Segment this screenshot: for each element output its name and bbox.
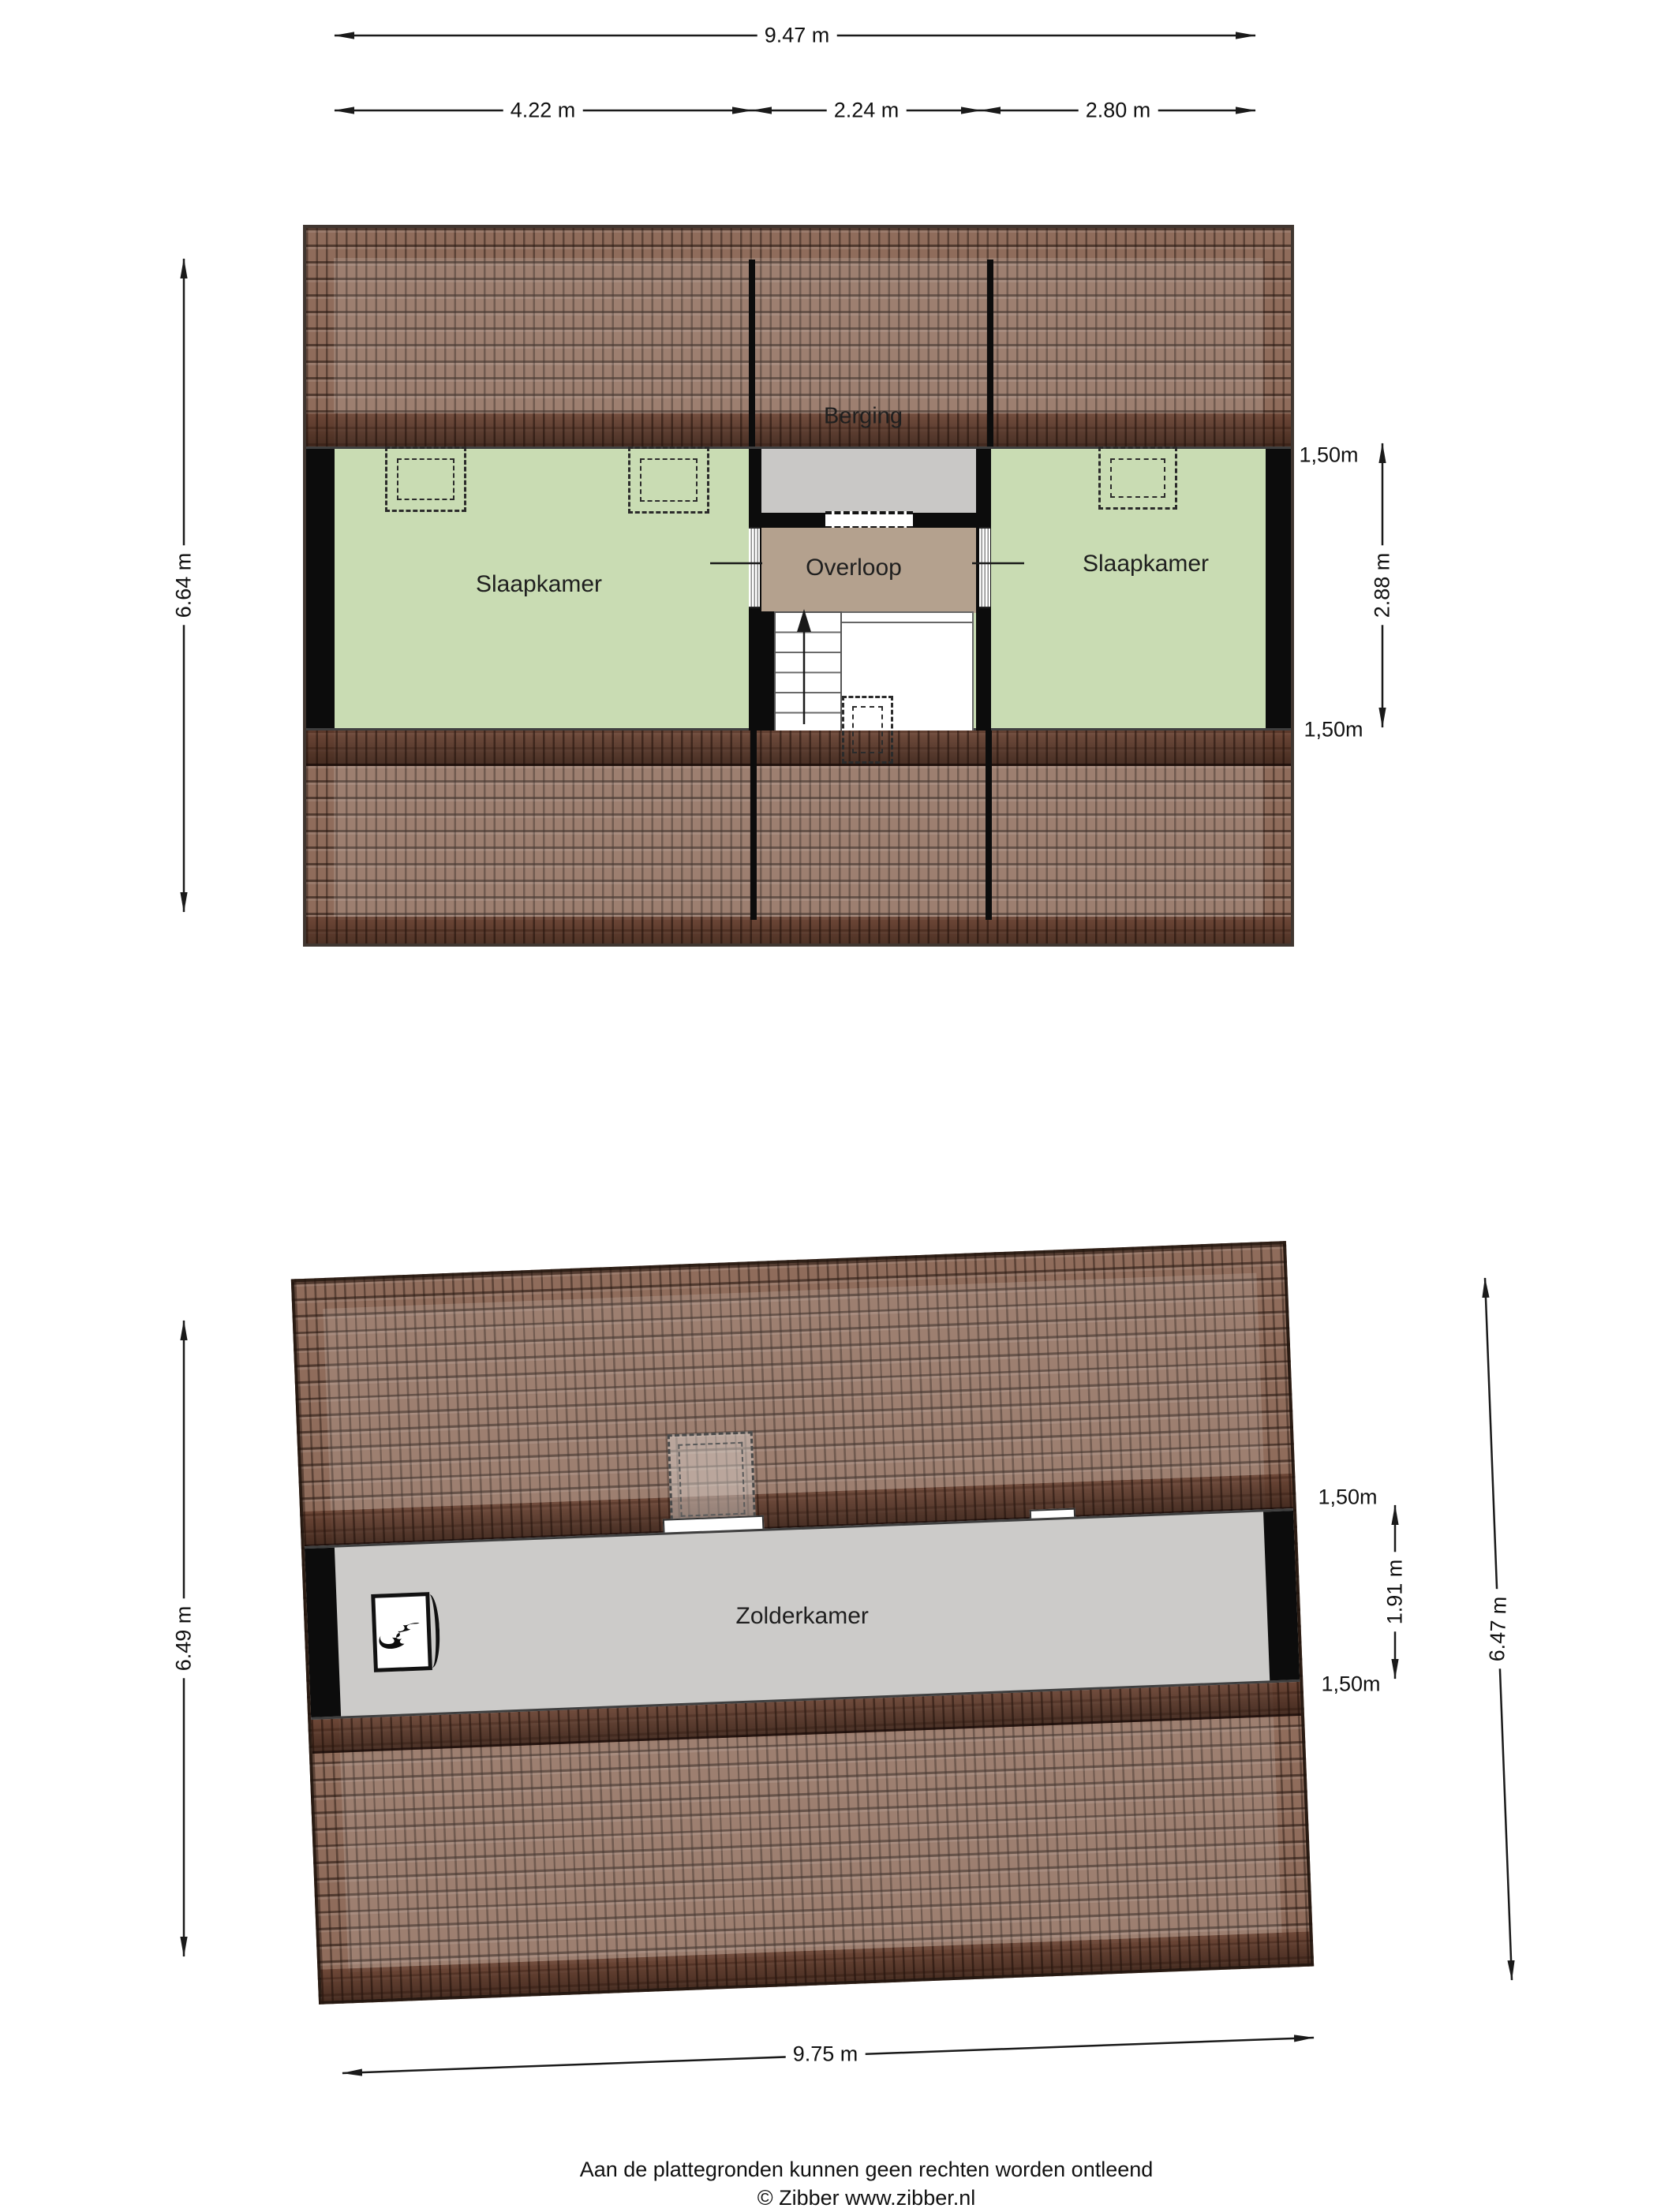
door-berging bbox=[825, 511, 913, 529]
dim-total-width-f2: 9.75 m bbox=[786, 2042, 866, 2068]
door-bedroom-right bbox=[979, 527, 990, 608]
wall-attic-right bbox=[1263, 1511, 1300, 1680]
roof-tiles-top bbox=[306, 228, 1291, 447]
dim-knee-bottom-f2: 1,50m bbox=[1314, 1672, 1387, 1698]
dim-total-height-left-f2: 6.49 m bbox=[171, 1599, 197, 1679]
room-label-zolderkamer: Zolderkamer bbox=[735, 1603, 868, 1630]
footer-credit: © Zibber www.zibber.nl bbox=[472, 2184, 1261, 2212]
dim-mid-width-f1: 2.24 m bbox=[827, 98, 907, 124]
room-berging-floor bbox=[761, 449, 976, 513]
skylight-dashed bbox=[668, 1431, 756, 1527]
door-bedroom-left bbox=[749, 527, 760, 608]
fireplace-icon bbox=[371, 1592, 432, 1672]
floorplan-attic: Zolderkamer bbox=[291, 1241, 1314, 2005]
roof-tiles-bottom bbox=[306, 730, 1291, 947]
wall-left bbox=[306, 449, 335, 728]
room-label-overloop: Overloop bbox=[806, 555, 902, 581]
void-hatch-dashed bbox=[842, 696, 893, 764]
room-label-slaapkamer-right: Slaapkamer bbox=[1083, 551, 1209, 577]
roof-window-dashed bbox=[628, 447, 709, 514]
dim-room-height-f1: 2.88 m bbox=[1370, 546, 1396, 626]
dim-left-width-f1: 4.22 m bbox=[503, 98, 583, 124]
roof-window-dashed bbox=[1098, 447, 1177, 510]
floorplan-first-floor: Berging Slaapkamer Overloop Slaapkamer bbox=[303, 225, 1294, 947]
dim-right-width-f1: 2.80 m bbox=[1079, 98, 1158, 124]
dim-knee-top-f2: 1,50m bbox=[1311, 1485, 1384, 1511]
roof-window-dashed bbox=[385, 447, 466, 512]
room-label-berging: Berging bbox=[824, 404, 903, 430]
roof-eave bbox=[306, 413, 1291, 449]
room-label-slaapkamer-left: Slaapkamer bbox=[476, 571, 602, 598]
dim-room-height-f2: 1.91 m bbox=[1382, 1553, 1408, 1632]
dim-total-width-f1: 9.47 m bbox=[757, 23, 837, 49]
dim-total-height-f1: 6.64 m bbox=[171, 546, 197, 626]
dim-knee-top-f1: 1,50m bbox=[1292, 443, 1365, 469]
footer-disclaimer: Aan de plattegronden kunnen geen rechten… bbox=[472, 2155, 1261, 2184]
dim-knee-bottom-f1: 1,50m bbox=[1296, 717, 1370, 743]
dim-total-height-right-f2: 6.47 m bbox=[1484, 1589, 1513, 1669]
wall-attic-left bbox=[305, 1548, 341, 1717]
wall-right bbox=[1266, 449, 1291, 728]
stairs bbox=[774, 611, 842, 732]
